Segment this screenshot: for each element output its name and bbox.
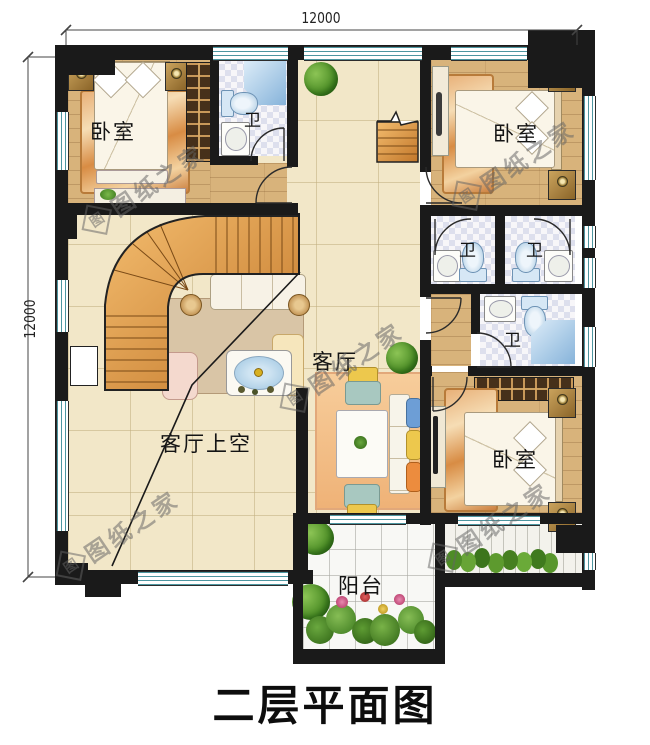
foliage (414, 620, 436, 644)
floor-bedroom-topleft-entry (210, 163, 287, 205)
corner-pillar (85, 570, 121, 597)
wall (210, 156, 258, 165)
window (56, 280, 69, 332)
corner-pillar (528, 30, 595, 88)
foliage (370, 614, 400, 646)
sink (484, 296, 516, 322)
armchair-back (345, 381, 381, 405)
room-label-living-void: 客厅上空 (160, 428, 252, 458)
room-label-bath-mid-right: 卫 (526, 236, 543, 261)
wall (210, 45, 219, 160)
table-plant (354, 436, 367, 449)
lower-floor-side-table (180, 294, 202, 316)
window (583, 327, 596, 367)
floor-nook (431, 294, 471, 366)
terrace-wall (443, 573, 595, 587)
corner-pillar (55, 45, 115, 75)
balcony-wall (293, 649, 445, 664)
floor-plan-page: 卧室 卫 卧室 卫 卫 卫 客厅 客厅上空 卧室 阳台 图图纸之家 图图纸之家 … (0, 0, 650, 745)
watermark-logo-icon: 图 (428, 542, 458, 572)
dimension-left-value: 12000 (21, 270, 39, 368)
window (583, 226, 596, 248)
lower-floor-decor (252, 389, 258, 395)
wall (290, 213, 300, 275)
tv-screen (433, 416, 438, 474)
lower-floor-decor (267, 386, 274, 393)
window (583, 553, 596, 570)
watermark-logo-icon: 图 (280, 382, 310, 412)
wall (420, 45, 431, 172)
wall (468, 366, 595, 376)
plan-title: 二层平面图 (212, 672, 437, 733)
watermark-logo-icon: 图 (56, 550, 86, 580)
sliding-door (330, 514, 406, 525)
window (304, 46, 422, 61)
sink (544, 250, 573, 282)
window (583, 258, 596, 288)
window (138, 571, 288, 586)
nightstand (548, 388, 576, 418)
nightstand (548, 170, 576, 200)
flower-yellow (378, 604, 388, 614)
lower-floor-armchair (162, 352, 198, 400)
window (583, 96, 596, 180)
hallway-plant (304, 62, 338, 96)
dimension-top-value: 12000 (260, 9, 383, 27)
room-label-bath-topleft: 卫 (244, 106, 261, 131)
lower-floor-decor (238, 386, 245, 393)
window (56, 401, 69, 531)
room-label-balcony: 阳台 (338, 570, 384, 600)
wall (420, 205, 595, 216)
flower-pink (394, 594, 405, 605)
window (213, 46, 288, 61)
wall (471, 292, 480, 334)
nightstand (165, 62, 187, 91)
wall (420, 284, 595, 294)
dresser-decor (436, 92, 442, 136)
corner-pillar (556, 525, 595, 553)
wall (495, 205, 505, 293)
room-label-bedroom-bottomright: 卧室 (492, 444, 538, 474)
window (451, 46, 527, 61)
balcony-wall (293, 521, 303, 664)
room-label-bath-lower: 卫 (504, 326, 521, 351)
room-label-bedroom-topleft: 卧室 (90, 116, 136, 146)
bay-window-seat (70, 346, 98, 386)
window (56, 112, 69, 170)
lower-floor-side-table (288, 294, 310, 316)
watermark-logo-icon: 图 (82, 204, 112, 234)
wall (420, 366, 432, 376)
sink (433, 250, 461, 282)
flower-bed (306, 592, 436, 650)
watermark-logo-icon: 图 (452, 180, 482, 210)
room-label-bath-mid-left: 卫 (459, 236, 476, 261)
wall (287, 45, 298, 167)
lower-floor-table-decor (254, 368, 263, 377)
